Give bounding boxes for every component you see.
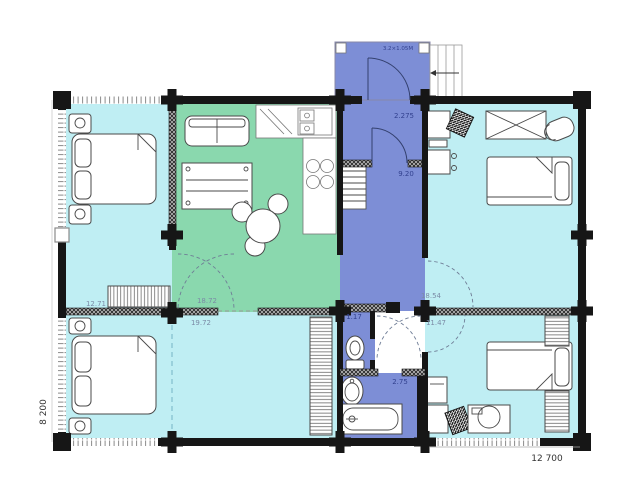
wall-corridor-left-upper (337, 104, 343, 255)
area-label-living-kitchen: 18.72 (197, 297, 217, 305)
window-top (66, 96, 166, 104)
wall-wc-upper (370, 311, 375, 339)
porch-post-right (419, 43, 429, 53)
wall-bath-right (417, 376, 423, 438)
area-label-wc-lobby: 1.17 (346, 313, 362, 321)
sofa (185, 116, 249, 146)
wall-bath-top-right (402, 369, 425, 376)
dimension-width: 12 700 (531, 454, 563, 464)
entry-steps (430, 45, 462, 100)
wall-partition-left (169, 104, 176, 244)
bed-single-bottom-right (487, 342, 572, 390)
area-label-bedroom-top-left: 12.71 (86, 300, 106, 308)
area-label-corridor: 9.20 (398, 170, 414, 178)
window-bottom-left (66, 438, 158, 446)
window-left-lower (58, 318, 66, 432)
wall-block (386, 302, 400, 313)
area-label-bedroom-top-right: 18.54 (421, 292, 442, 300)
area-label-entry-hall: 2.275 (394, 112, 414, 120)
wall-bath-top-left (340, 369, 378, 376)
wardrobe-bottom-left (310, 317, 332, 435)
washbasin (341, 377, 363, 405)
wardrobe-x-top-right (486, 111, 546, 139)
wall-hall-right (408, 160, 422, 167)
wall-mid-center (258, 308, 340, 315)
wall-top-right-segment (410, 96, 586, 104)
wall-mid-left (66, 308, 218, 315)
wall-corridor-right-upper (422, 104, 428, 258)
window-joint (55, 228, 69, 242)
window-left-upper (58, 110, 66, 228)
dimension-height: 8 200 (39, 399, 49, 425)
desk-bottom-right (426, 377, 448, 433)
wall-mid-right (425, 308, 582, 315)
wardrobe-top-left (108, 286, 170, 307)
bathtub (339, 404, 402, 434)
label-porch: 3.2×1.05M (383, 46, 414, 52)
area-label-bedroom-bottom-left: 19.72 (191, 319, 211, 327)
area-label-bedroom-bottom-right: 11.47 (426, 319, 446, 327)
staircase (340, 165, 366, 209)
wall-right (578, 96, 586, 446)
window-bottom-right (436, 438, 540, 446)
floor-plan-page: 12.71 18.72 19.72 18.54 11.47 2.275 9.20… (0, 0, 642, 502)
wardrobe-bottom-right-1 (545, 316, 569, 346)
area-label-bathroom: 2.75 (392, 378, 408, 386)
wardrobe-bottom-right-2 (545, 391, 569, 432)
wall-hall-left (343, 160, 372, 167)
floor-plan-drawing: 12.71 18.72 19.72 18.54 11.47 2.275 9.20… (0, 0, 642, 502)
desk-2-bottom-right (468, 405, 510, 433)
bed-single-top-right (487, 157, 572, 205)
toilet (346, 336, 364, 369)
porch-post-left (336, 43, 346, 53)
